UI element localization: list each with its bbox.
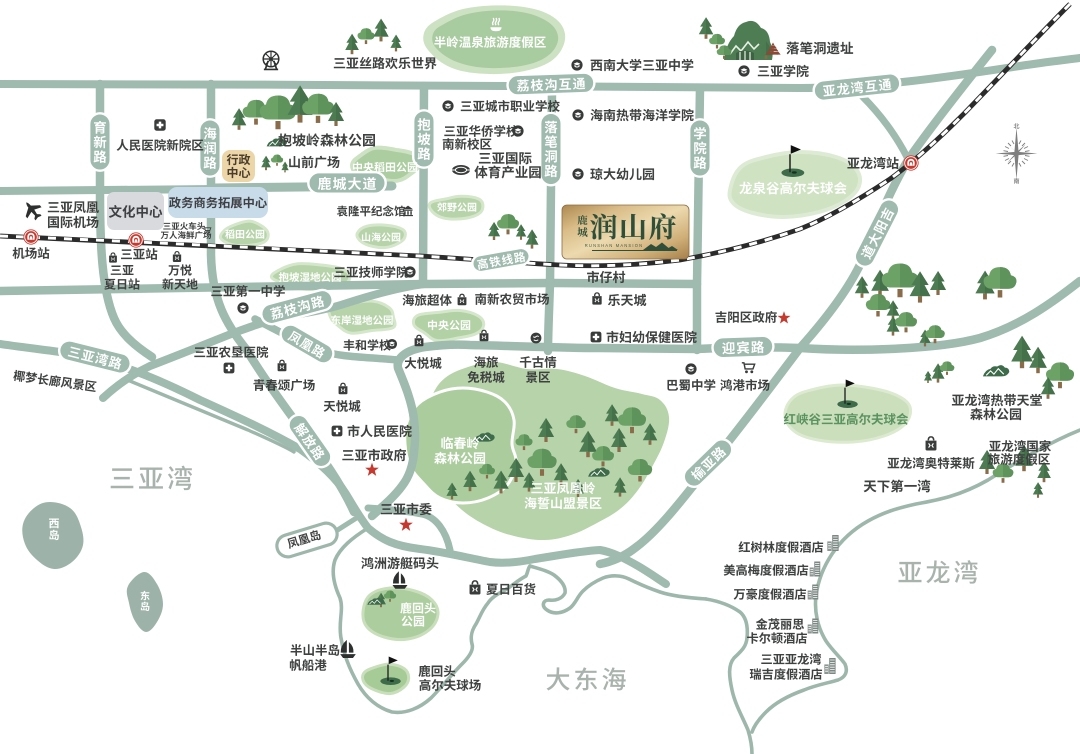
svg-text:RUNSHAN MANSION: RUNSHAN MANSION <box>585 243 644 248</box>
